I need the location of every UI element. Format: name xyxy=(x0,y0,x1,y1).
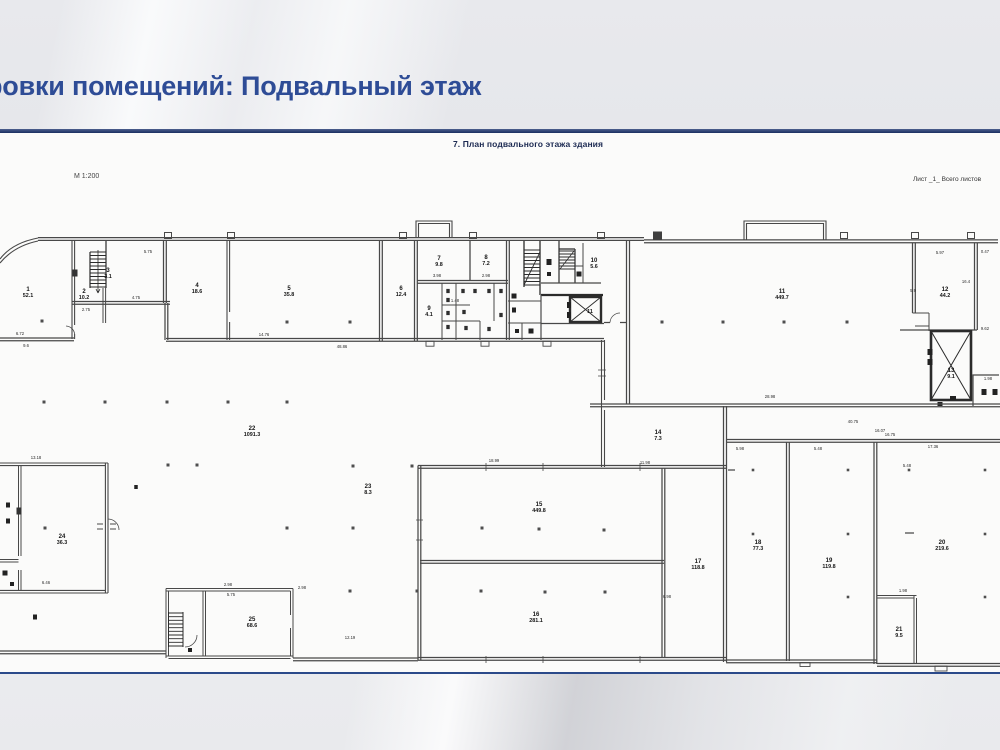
svg-text:1.98: 1.98 xyxy=(899,588,908,593)
svg-text:449.7: 449.7 xyxy=(775,295,789,301)
svg-text:36.3: 36.3 xyxy=(57,540,68,546)
svg-text:0.47: 0.47 xyxy=(981,249,990,254)
svg-text:5.48: 5.48 xyxy=(903,463,912,468)
svg-text:449.8: 449.8 xyxy=(532,508,546,514)
svg-text:9.62: 9.62 xyxy=(981,326,990,331)
svg-text:118.8: 118.8 xyxy=(691,565,704,571)
svg-text:28.98: 28.98 xyxy=(765,394,776,399)
svg-text:48.86: 48.86 xyxy=(337,344,348,349)
svg-text:1.48: 1.48 xyxy=(451,298,460,303)
svg-text:6.46: 6.46 xyxy=(42,580,51,585)
svg-text:7.3: 7.3 xyxy=(654,436,662,442)
svg-text:18.6: 18.6 xyxy=(192,289,203,295)
svg-text:5.75: 5.75 xyxy=(144,249,153,254)
svg-text:8.3: 8.3 xyxy=(364,490,372,496)
svg-text:9.5: 9.5 xyxy=(895,633,903,639)
svg-text:4.1: 4.1 xyxy=(425,312,433,318)
svg-text:219.6: 219.6 xyxy=(935,546,949,552)
svg-text:14.76: 14.76 xyxy=(259,332,270,337)
svg-text:17.36: 17.36 xyxy=(928,444,939,449)
svg-text:5.98: 5.98 xyxy=(736,446,745,451)
svg-text:13.18: 13.18 xyxy=(31,455,42,460)
svg-text:16.75: 16.75 xyxy=(885,432,896,437)
svg-text:16.4: 16.4 xyxy=(962,279,971,284)
svg-text:2.98: 2.98 xyxy=(482,273,491,278)
svg-text:35.8: 35.8 xyxy=(284,292,295,298)
svg-text:52.1: 52.1 xyxy=(23,293,34,299)
svg-text:18.99: 18.99 xyxy=(489,458,500,463)
svg-text:11: 11 xyxy=(587,309,593,315)
svg-text:2.75: 2.75 xyxy=(82,307,91,312)
svg-text:9.8: 9.8 xyxy=(435,262,443,268)
svg-text:2.98: 2.98 xyxy=(224,582,233,587)
svg-text:12.19: 12.19 xyxy=(345,635,356,640)
svg-text:1091.3: 1091.3 xyxy=(244,432,261,438)
svg-text:68.6: 68.6 xyxy=(247,623,258,629)
svg-text:40.75: 40.75 xyxy=(848,419,859,424)
svg-text:9.6: 9.6 xyxy=(23,343,29,348)
svg-text:9.1: 9.1 xyxy=(947,374,955,380)
svg-text:12.4: 12.4 xyxy=(396,292,407,298)
svg-text:281.1: 281.1 xyxy=(529,618,543,624)
svg-text:119.8: 119.8 xyxy=(822,564,835,570)
svg-text:3.98: 3.98 xyxy=(433,273,442,278)
svg-text:1.98: 1.98 xyxy=(984,376,993,381)
svg-text:10.2: 10.2 xyxy=(79,295,90,301)
svg-text:5.97: 5.97 xyxy=(936,250,945,255)
svg-text:6.98: 6.98 xyxy=(663,594,672,599)
svg-text:5.48: 5.48 xyxy=(814,446,823,451)
svg-text:2.98: 2.98 xyxy=(298,585,307,590)
svg-text:44.2: 44.2 xyxy=(940,293,951,299)
svg-text:5.9: 5.9 xyxy=(910,288,916,293)
svg-text:3.1: 3.1 xyxy=(104,274,112,280)
svg-text:5.6: 5.6 xyxy=(590,264,598,270)
svg-text:7.2: 7.2 xyxy=(482,261,490,267)
svg-text:6.72: 6.72 xyxy=(16,331,25,336)
svg-text:5.75: 5.75 xyxy=(227,592,236,597)
svg-text:11.98: 11.98 xyxy=(640,460,651,465)
svg-text:4.75: 4.75 xyxy=(132,295,141,300)
svg-text:77.3: 77.3 xyxy=(753,546,764,552)
